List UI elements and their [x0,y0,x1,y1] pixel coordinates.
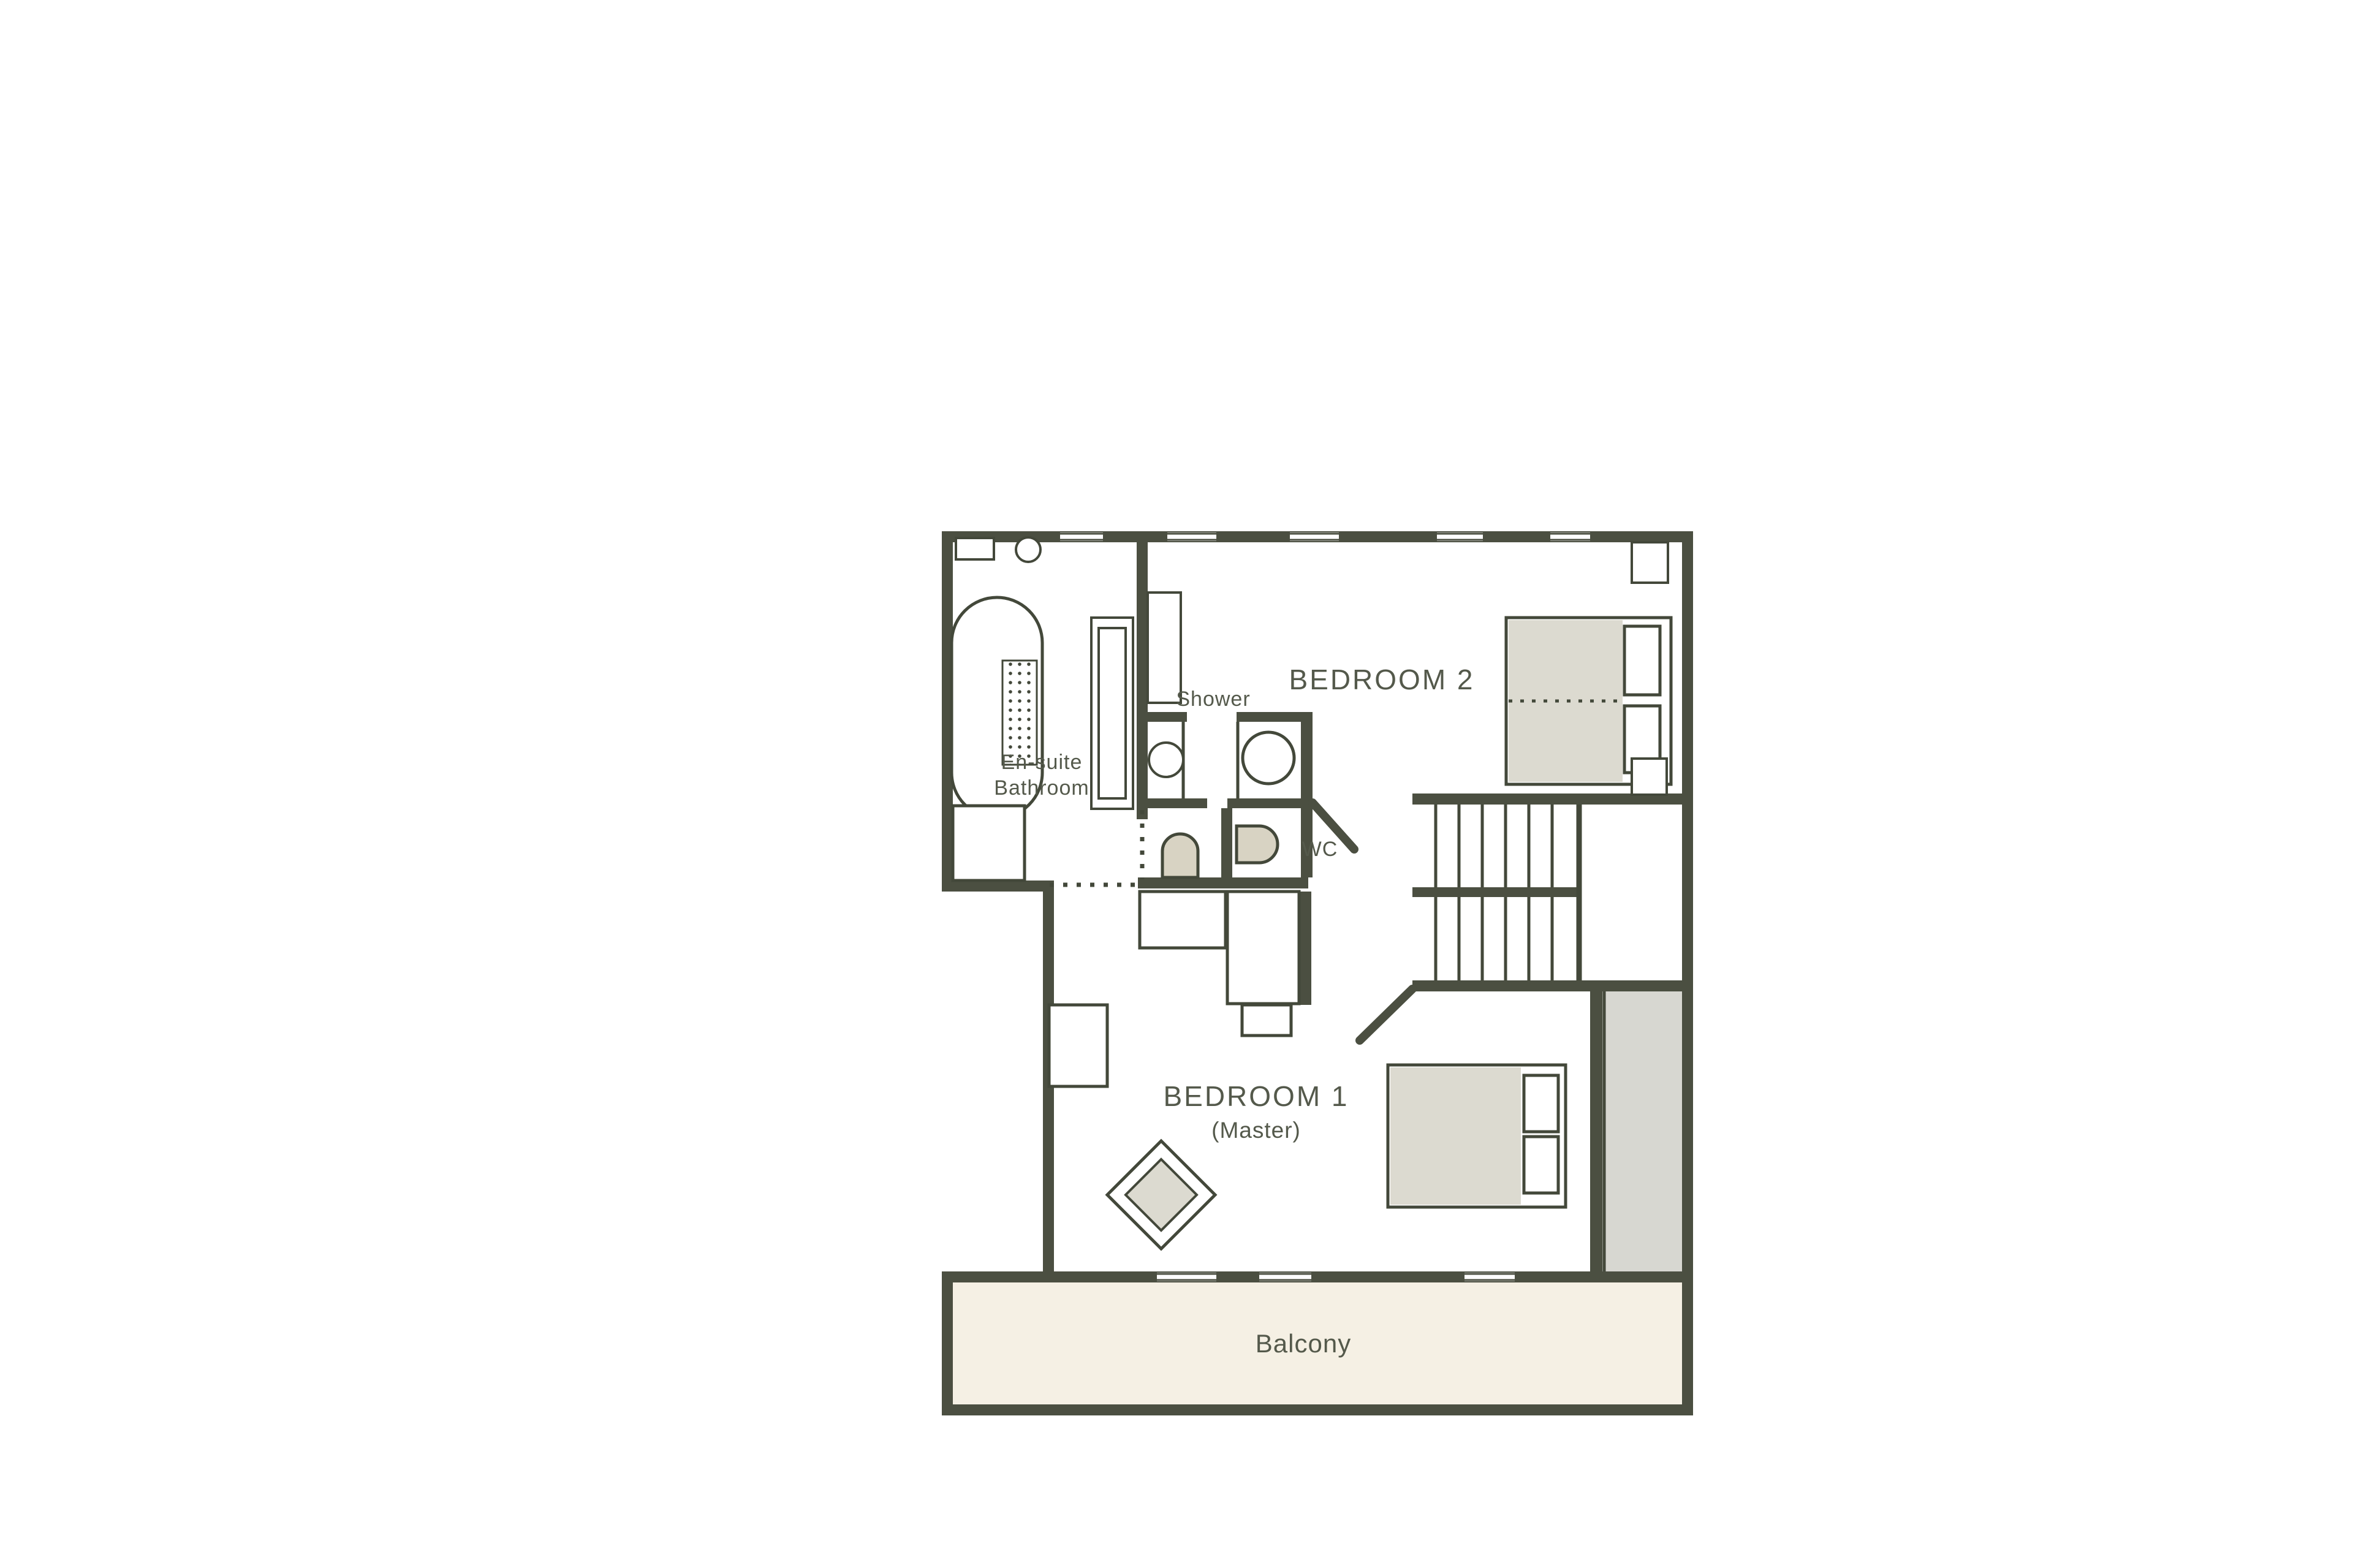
window-top-3 [1290,532,1339,541]
pillow [1524,1075,1558,1132]
label-bedroom1-line1: BEDROOM 1 [1163,1080,1349,1112]
pillow [1624,626,1660,695]
double-bed-bedroom1 [1388,1065,1566,1207]
washbasin-counter [956,538,994,559]
toilet-side [1237,826,1278,863]
toilet-front [1162,834,1198,877]
shower-stall-left [1149,722,1183,798]
stool [1242,1005,1291,1036]
dresser [1049,1005,1107,1086]
window-balcony-3 [1464,1273,1515,1281]
floor-plan-drawing: BEDROOM 2 Shower En-suite Bathroom WC BE… [942,531,1693,1415]
label-ensuite-line2: Bathroom [994,776,1089,800]
bedside-table-top [1632,542,1668,583]
shower-tray [953,806,1025,881]
stair-treads-upper [1436,805,1552,887]
window-balcony-2 [1259,1273,1311,1281]
dotted-passage-lines [1050,810,1142,885]
bedside-table-bottom [1632,759,1667,795]
desk [1140,892,1226,948]
dressing-unit [1227,892,1299,1004]
label-bedroom1-line2: (Master) [1211,1118,1301,1143]
stair-treads-lower [1436,897,1552,980]
window-balcony-1 [1157,1273,1216,1281]
label-wc: WC [1302,838,1338,861]
window-top-1 [1060,532,1103,541]
label-bedroom2: BEDROOM 2 [1289,664,1474,695]
window-top-5 [1550,532,1590,541]
label-shower: Shower [1176,687,1250,711]
label-ensuite-line1: En-suite [1001,751,1083,774]
floor-plan-page: BEDROOM 2 Shower En-suite Bathroom WC BE… [0,0,2353,1568]
window-top-4 [1437,532,1483,541]
tall-cabinet [1091,618,1133,809]
wardrobe [1602,991,1682,1271]
rug [1107,1141,1215,1249]
pillow [1524,1137,1558,1193]
round-basin [1016,537,1040,562]
window-top-2 [1167,532,1216,541]
bath-mat [1002,661,1037,765]
door-swing-bedroom1 [1360,989,1412,1040]
bedroom2-wardrobe [1148,593,1181,703]
shower-stall-right [1238,722,1294,798]
label-balcony: Balcony [1256,1329,1351,1358]
